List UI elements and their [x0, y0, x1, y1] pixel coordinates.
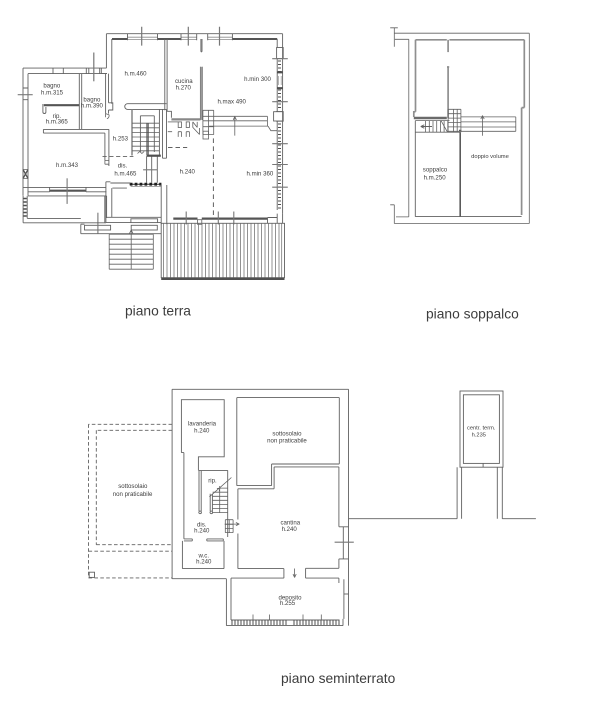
svg-text:h.min 360: h.min 360	[247, 171, 274, 178]
svg-text:h.min 300: h.min 300	[244, 76, 271, 83]
svg-text:non praticabile: non praticabile	[267, 438, 307, 445]
svg-text:h.235: h.235	[472, 432, 486, 438]
svg-text:bagno: bagno	[43, 83, 61, 90]
svg-text:non praticabile: non praticabile	[113, 491, 153, 498]
svg-text:doppio volume: doppio volume	[471, 154, 509, 160]
svg-text:h.m.465: h.m.465	[114, 170, 137, 177]
svg-text:h.m.250: h.m.250	[424, 175, 447, 182]
svg-text:soppalco: soppalco	[423, 166, 448, 173]
svg-text:h.m.390: h.m.390	[81, 102, 104, 109]
svg-text:h.240: h.240	[194, 528, 210, 535]
svg-text:h.240: h.240	[180, 169, 196, 176]
svg-text:sottosolaio: sottosolaio	[272, 431, 302, 438]
svg-text:piano soppalco: piano soppalco	[426, 307, 519, 322]
svg-text:h.m.460: h.m.460	[124, 71, 147, 78]
svg-text:h.m.343: h.m.343	[56, 162, 79, 169]
svg-text:centr. term.: centr. term.	[467, 426, 496, 432]
svg-text:h.255: h.255	[280, 600, 296, 607]
svg-text:piano terra: piano terra	[125, 304, 191, 319]
svg-text:h.m.365: h.m.365	[46, 119, 69, 126]
svg-text:h.240: h.240	[196, 559, 212, 566]
svg-text:piano seminterrato: piano seminterrato	[281, 671, 396, 686]
svg-text:dis.: dis.	[118, 163, 128, 170]
svg-text:h.240: h.240	[282, 526, 298, 533]
svg-text:rip.: rip.	[208, 478, 217, 485]
svg-text:h.240: h.240	[194, 427, 210, 434]
svg-text:h.270: h.270	[176, 85, 192, 92]
svg-text:h.m.315: h.m.315	[41, 90, 64, 97]
svg-text:sottosolaio: sottosolaio	[118, 483, 148, 490]
svg-text:h.max 490: h.max 490	[217, 99, 246, 106]
svg-text:h.253: h.253	[113, 136, 129, 143]
